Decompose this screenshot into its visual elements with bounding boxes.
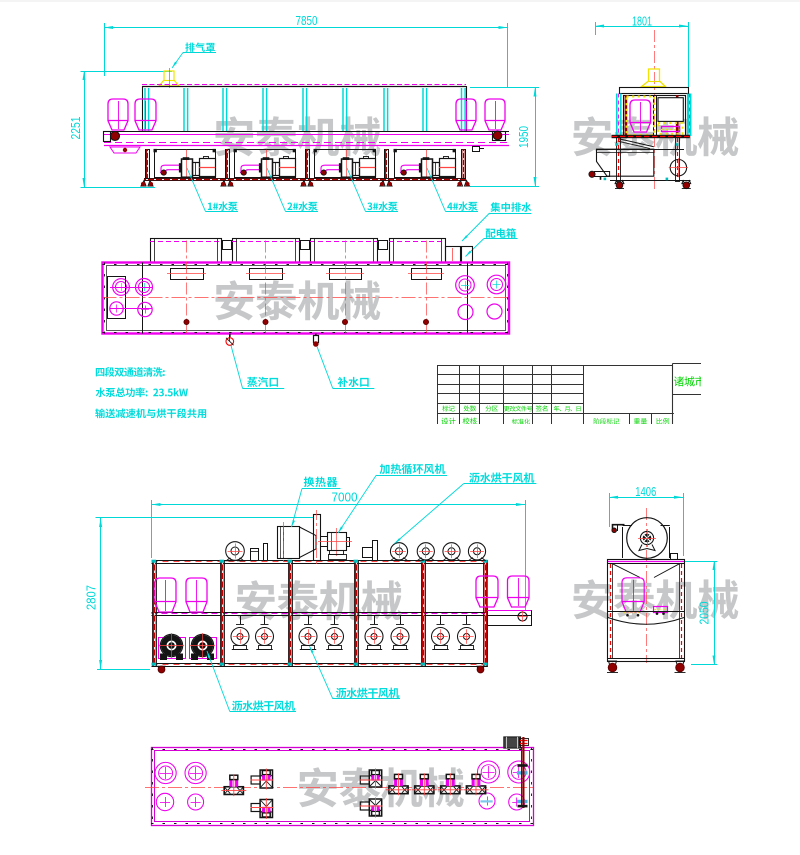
svg-text:7850: 7850 (296, 14, 318, 28)
svg-text:1406: 1406 (635, 485, 656, 499)
svg-text:2050: 2050 (698, 601, 712, 624)
svg-text:2251: 2251 (69, 116, 83, 139)
svg-text:7000: 7000 (332, 491, 358, 505)
svg-text:1950: 1950 (517, 126, 531, 148)
svg-text:1801: 1801 (632, 15, 652, 29)
svg-text:2807: 2807 (85, 585, 99, 610)
